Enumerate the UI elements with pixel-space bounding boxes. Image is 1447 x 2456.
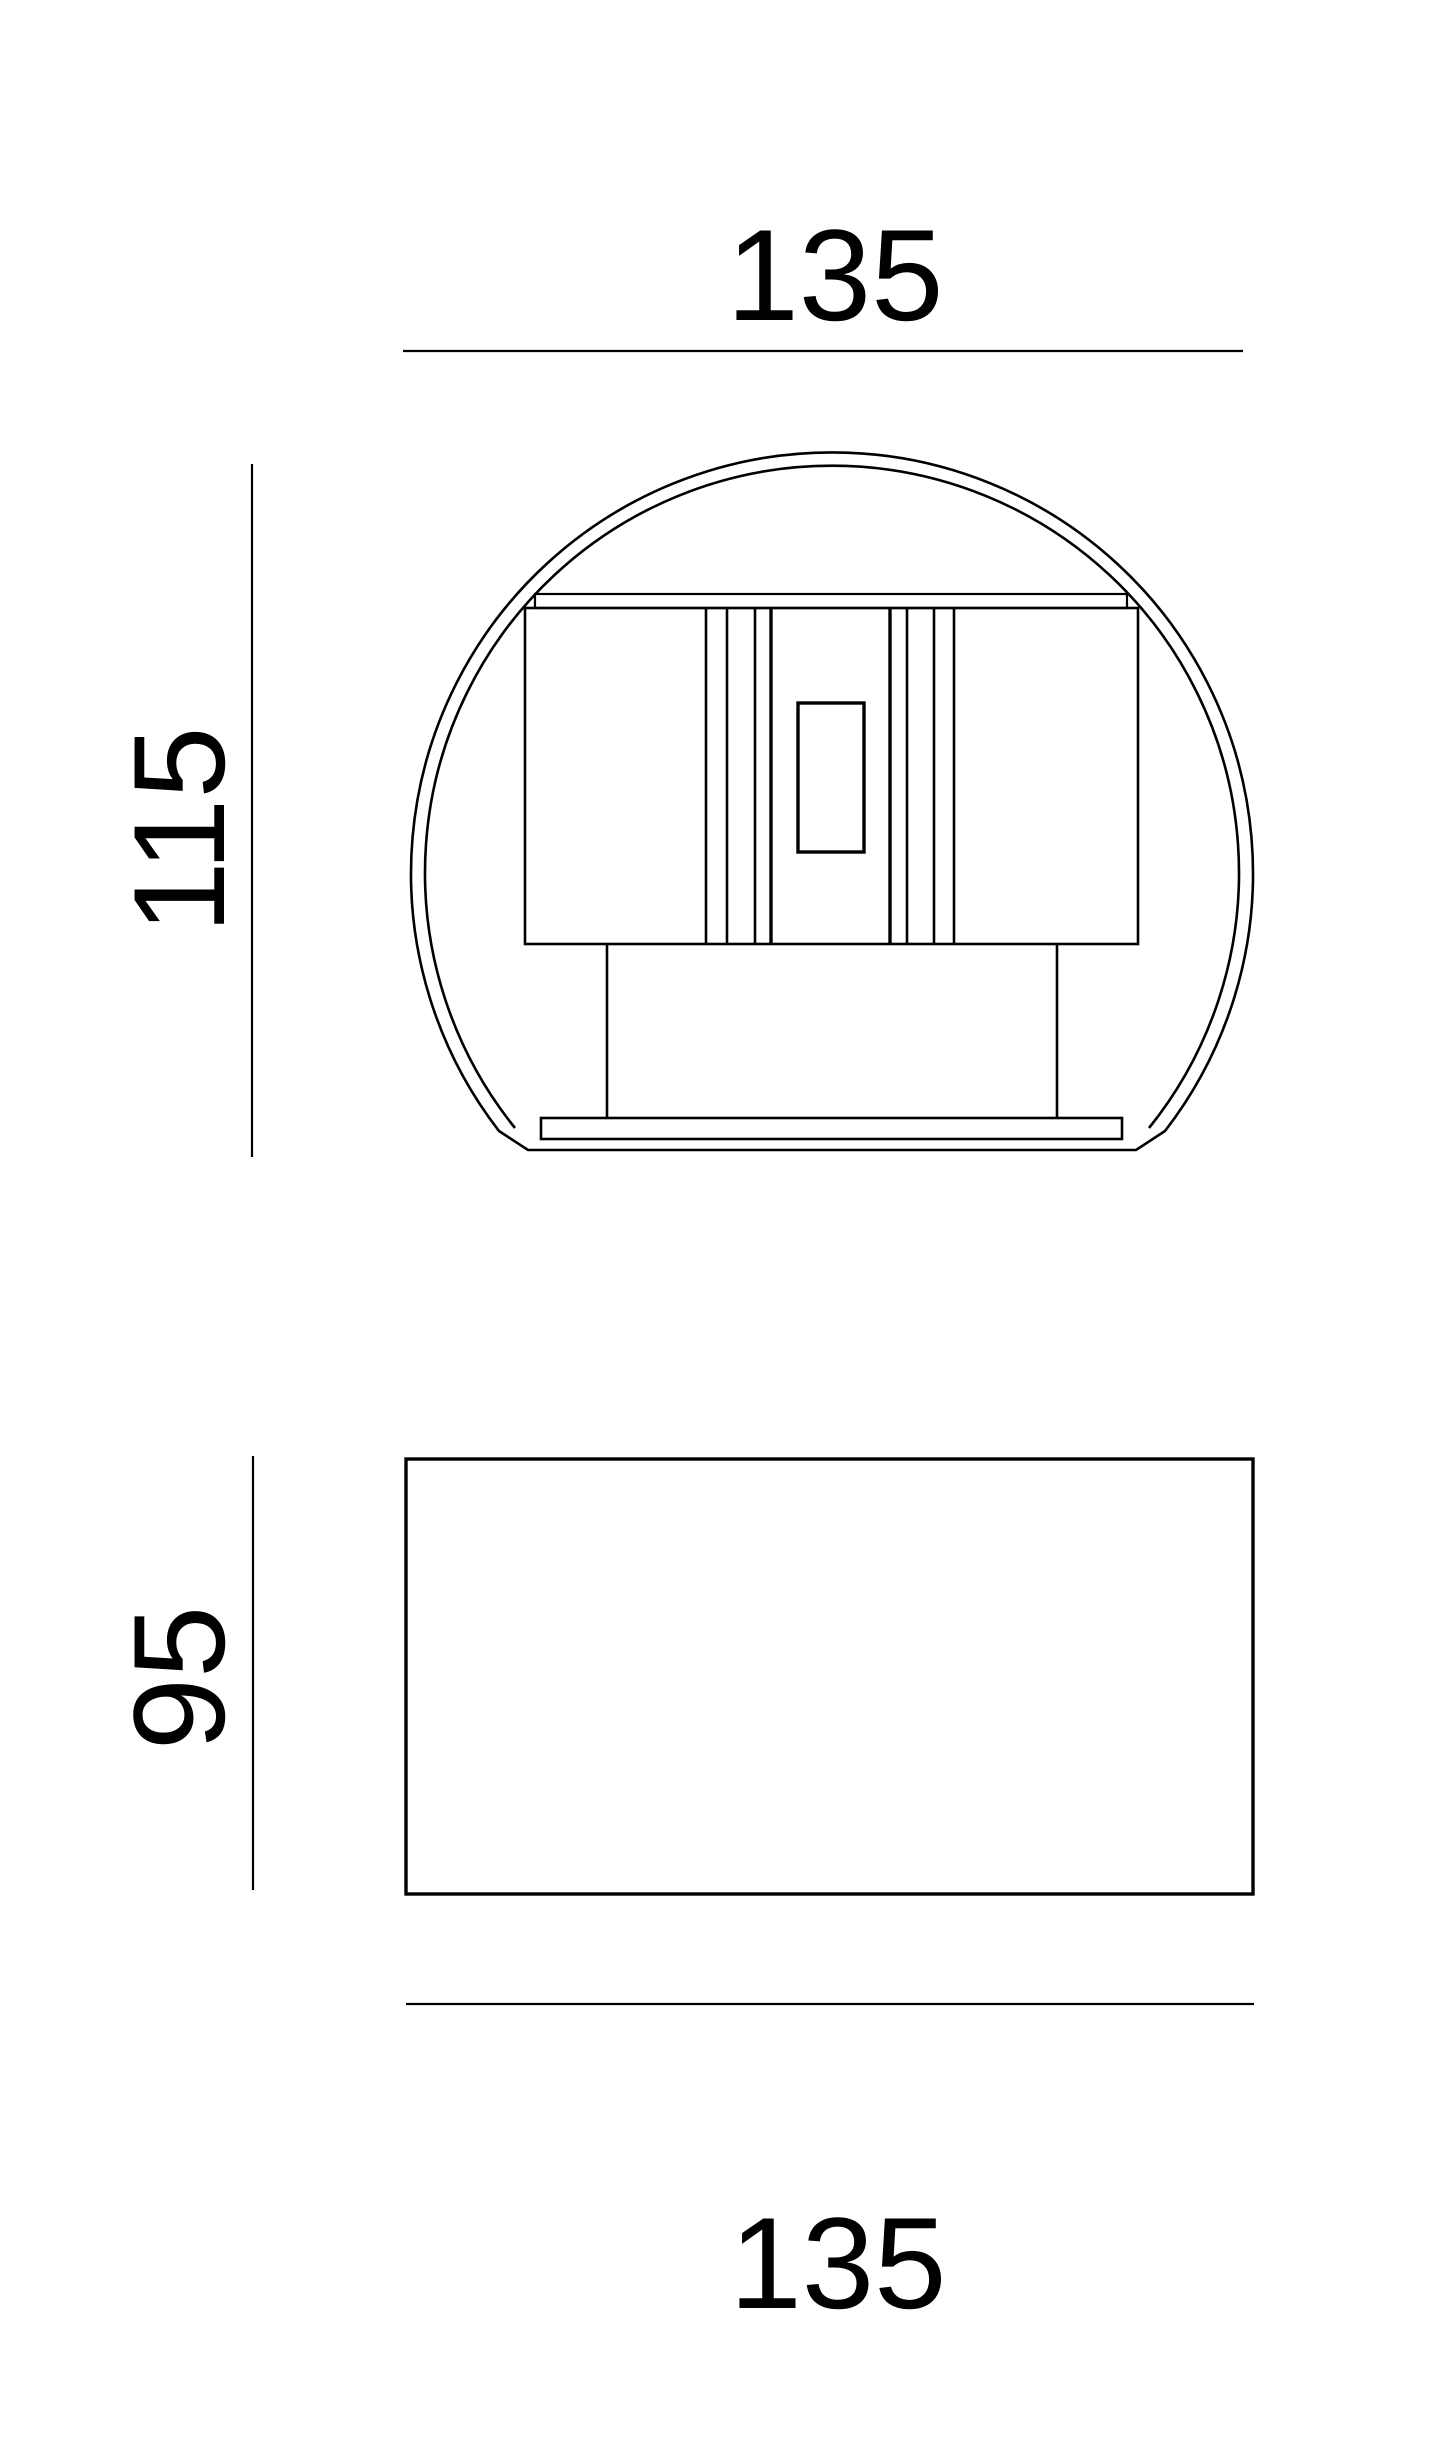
- outer-shell-outline: [411, 452, 1253, 1150]
- dim-label-width-bottom: 135: [730, 2190, 947, 2336]
- dim-label-width-top: 135: [727, 202, 944, 348]
- diffuser-top-bar: [535, 594, 1127, 608]
- center-window: [798, 703, 864, 852]
- lamp-body: [525, 608, 1138, 944]
- top-view: 135 115: [106, 202, 1253, 1157]
- dim-label-height-front: 95: [106, 1606, 252, 1751]
- front-view: 95 135: [106, 1456, 1254, 2336]
- dim-label-height-side: 115: [106, 726, 252, 933]
- dimension-drawing: 135 115: [0, 0, 1447, 2456]
- mount-plate: [541, 1118, 1122, 1139]
- front-outline: [406, 1459, 1253, 1894]
